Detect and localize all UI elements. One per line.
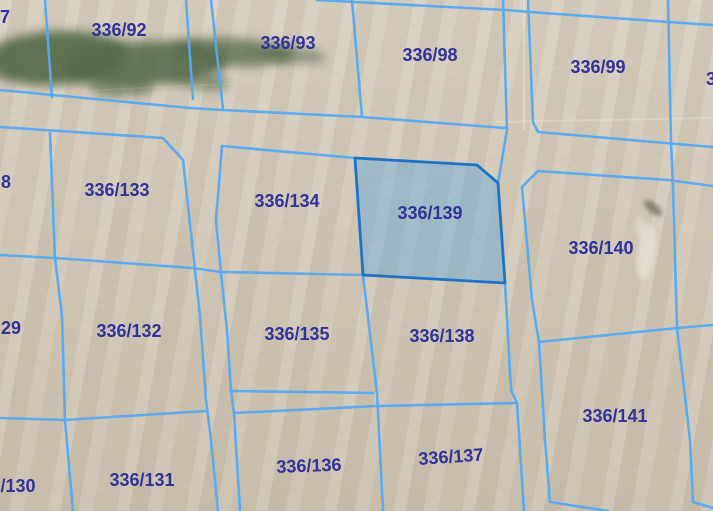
parcel-label--130: /130 bbox=[0, 476, 35, 496]
parcel-boundary-row1-row2-divider bbox=[0, 255, 363, 275]
field-line bbox=[495, 118, 713, 122]
parcel-boundary-parcel-132-131-divider bbox=[0, 411, 206, 420]
parcel-label-336-137: 336/137 bbox=[418, 445, 484, 469]
parcel-boundary-middle-block-top-edge bbox=[222, 146, 355, 158]
parcel-label-336-138: 336/138 bbox=[409, 326, 474, 346]
map-canvas[interactable]: 7336/92336/93336/98336/9938336/133336/13… bbox=[0, 0, 713, 511]
parcel-label-336-139: 336/139 bbox=[397, 203, 462, 223]
parcel-label-336-134: 336/134 bbox=[254, 191, 319, 211]
parcel-boundary-middle-block-left-edge bbox=[216, 146, 240, 511]
parcel-boundary-top-strip-bottom-edge bbox=[0, 90, 505, 128]
parcel-label-3: 3 bbox=[706, 69, 713, 89]
parcel-boundary-parcel-140-141-divider bbox=[539, 325, 713, 342]
parcel-label-336-141: 336/141 bbox=[582, 406, 647, 426]
parcel-label-336-99: 336/99 bbox=[570, 57, 625, 77]
parcel-label-29: 29 bbox=[1, 318, 21, 338]
parcel-boundary-middle-block-right-edge bbox=[505, 283, 524, 511]
vegetation-patch bbox=[86, 75, 154, 97]
parcel-label-336-135: 336/135 bbox=[264, 324, 329, 344]
parcel-boundary-parcel-136-137-top-edge bbox=[234, 403, 517, 413]
parcel-label-336-132: 336/132 bbox=[96, 321, 161, 341]
ground-mark bbox=[641, 197, 664, 219]
parcel-boundary-parcel-140-top-edge bbox=[522, 171, 713, 187]
parcel-label-336-136: 336/136 bbox=[276, 455, 342, 477]
parcel-label-336-92: 336/92 bbox=[91, 20, 146, 40]
parcel-label-336-140: 336/140 bbox=[568, 238, 633, 258]
parcel-label-8: 8 bbox=[1, 172, 11, 192]
parcel-label-7: 7 bbox=[0, 7, 10, 27]
cadastral-map[interactable]: 7336/92336/93336/98336/9938336/133336/13… bbox=[0, 0, 713, 511]
parcel-label-336-131: 336/131 bbox=[109, 470, 174, 490]
parcel-label-336-98: 336/98 bbox=[402, 45, 457, 65]
parcel-boundary-left-edge-parcels-divider bbox=[50, 133, 73, 511]
parcel-boundary-top-right-strip-edge bbox=[317, 0, 713, 25]
parcel-boundary-corridor-98-right-edge bbox=[498, 0, 507, 183]
parcel-boundary-right-block-left-edge bbox=[522, 187, 608, 511]
parcel-label-336-133: 336/133 bbox=[84, 180, 149, 200]
parcel-boundary-parcel-93-98-divider bbox=[352, 0, 362, 117]
parcel-label-336-93: 336/93 bbox=[260, 33, 315, 53]
parcel-boundary-parcel-135-bottom-edge bbox=[231, 391, 373, 393]
